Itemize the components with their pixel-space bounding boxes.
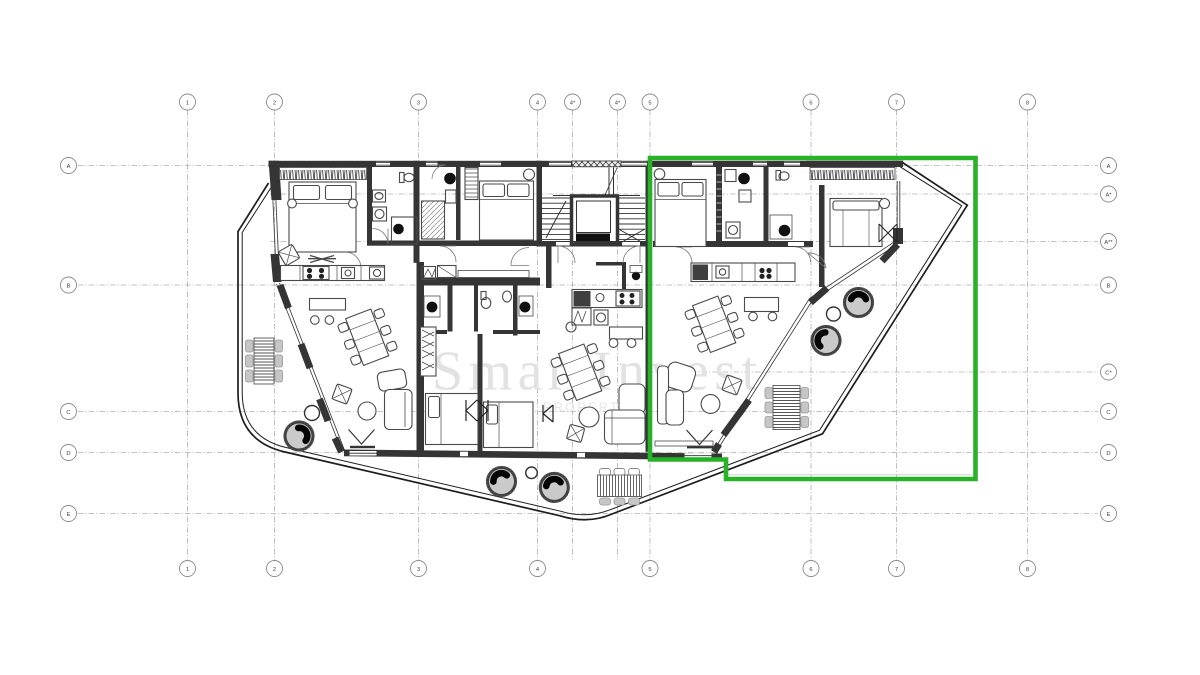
svg-text:1: 1 [186, 567, 189, 573]
svg-text:5: 5 [648, 567, 651, 573]
svg-text:D: D [66, 451, 70, 457]
svg-text:A**: A** [1104, 240, 1113, 246]
svg-text:4*: 4* [615, 100, 621, 106]
svg-text:6: 6 [809, 567, 812, 573]
svg-text:2: 2 [273, 100, 276, 106]
svg-text:2: 2 [273, 567, 276, 573]
svg-text:4*: 4* [570, 100, 576, 106]
svg-text:8: 8 [1026, 100, 1029, 106]
svg-text:C*: C* [1105, 370, 1112, 376]
svg-text:6: 6 [809, 100, 812, 106]
svg-text:E: E [67, 512, 71, 518]
svg-text:A*: A* [1105, 192, 1112, 198]
svg-text:1: 1 [186, 100, 189, 106]
svg-text:3: 3 [417, 567, 420, 573]
svg-text:7: 7 [895, 567, 898, 573]
svg-text:8: 8 [1026, 567, 1029, 573]
svg-text:B: B [67, 283, 71, 289]
svg-text:B: B [1107, 283, 1111, 289]
svg-text:5: 5 [648, 100, 651, 106]
svg-text:C: C [1106, 410, 1110, 416]
svg-text:C: C [66, 410, 70, 416]
svg-text:E: E [1107, 512, 1111, 518]
svg-text:A: A [67, 164, 71, 170]
svg-text:7: 7 [895, 100, 898, 106]
svg-text:D: D [1106, 451, 1110, 457]
svg-text:3: 3 [417, 100, 420, 106]
svg-text:A: A [1107, 164, 1111, 170]
